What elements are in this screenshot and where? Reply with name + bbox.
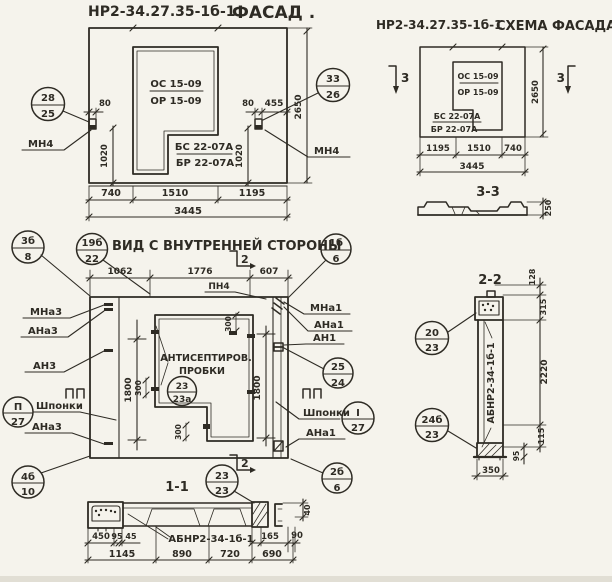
callout-num: 24б [422,414,443,426]
facade-opening-mark-top: ОС 15-09 [150,79,201,90]
callout-num: 28 [41,93,55,104]
leader-line [284,348,324,369]
facade-title-name: ФАСАД . [232,3,315,23]
scan-artifact [0,576,612,582]
label-mna1: МНа1 [310,303,342,314]
callout-num: 4б [21,471,35,483]
inner-view: ВИД С ВНУТРЕННЕЙ СТОРОНЫ 3б 8 19б 22 2 1… [3,231,374,503]
callout-num: 20 [425,328,439,339]
callout-den: 27 [11,417,25,428]
section-marker-label: 2 [241,457,249,470]
dim-740: 740 [504,144,522,154]
dim-1020-left: 1020 [100,144,110,168]
dim-2220: 2220 [540,359,550,384]
scheme-opening-mark-bottom: ОР 15-09 [457,88,498,97]
callout-24b-23: 24б 23 [416,409,477,449]
callout-den: 25 [41,109,55,120]
leader-line [25,433,104,444]
dim-315: 315 [539,298,548,315]
rebar-dots [482,303,494,311]
dim-300-b: 300 [134,380,143,396]
label-an1: АН1 [313,333,336,344]
dim-165: 165 [261,532,279,542]
drawing-canvas: НР2-34.27.35-1б-1 ФАСАД . ОС 15-09 ОР 15… [0,0,612,582]
label-ana3-bottom: АНа3 [32,422,62,433]
scheme-title-name: СХЕМА ФАСАДА [496,19,612,34]
dim-1195: 1195 [426,144,450,154]
callout-num: 33 [326,74,340,85]
section-marker-3-left: 3 [389,66,409,94]
inner-view-title: ВИД С ВНУТРЕННЕЙ СТОРОНЫ [112,238,341,254]
callout-den: 22 [85,254,99,265]
dim-95: 95 [111,532,123,541]
callout-den: 27 [351,423,365,434]
dim-1195: 1195 [239,188,265,199]
callout-den: 23 [425,343,439,354]
callout-4b-10: 4б 10 [12,456,90,498]
hatch-lines [253,503,267,526]
scheme-block-mark-bottom: БР 22-07А [431,125,478,134]
section-2-2-mark: АБНР2-34-1б-1 [486,342,497,423]
left-edge-anchor-marks [104,303,113,445]
right-edge-anchor-marks [272,298,284,451]
section-1-1-title: 1-1 [165,480,189,495]
leader-line [205,292,266,299]
dim-80-right: 80 [242,99,254,109]
dim-1062: 1062 [107,267,132,277]
bottom-end-block [477,443,503,457]
section-3-3-title: 3-3 [476,185,500,200]
dim-1800-left: 1800 [124,377,134,402]
dim-1776: 1776 [187,267,212,277]
drawing-sheet: НР2-34.27.35-1б-1 ФАСАД . ОС 15-09 ОР 15… [0,0,612,582]
callout-20-23: 20 23 [416,313,477,355]
callout-num: 19б [82,237,103,249]
dim-1510: 1510 [162,188,189,199]
label-shponki-left: Шпонки [36,401,83,412]
dim-690: 690 [262,549,282,560]
dim-450: 450 [92,532,110,542]
leader-line [448,431,476,448]
callout-num: 1б [329,237,343,249]
web-rib-profile [146,509,246,526]
dim-455: 455 [265,99,284,109]
left-block-channel [92,506,120,521]
callout-den: 6 [333,254,340,265]
pn4-label: ПН4 [208,282,229,292]
scheme-block-mark-top: БС 22-07А [434,112,481,121]
dim-2650: 2650 [531,80,541,104]
callout-23-23a: 23 23а [168,377,197,406]
callout-den: 23 [215,486,229,497]
facade-block-mark-top: БС 22-07А [175,142,233,153]
antiseptic-plugs [151,330,255,429]
section-3-3: 3-3 250 [418,185,553,219]
dim-128: 128 [528,268,537,285]
label-an3: АН3 [33,361,56,372]
callout-num: 2б [330,466,344,478]
callout-num: 23 [176,382,189,392]
facade-anchor-label-right: МН4 [314,146,339,157]
right-channel-ticks [278,509,282,521]
dim-115: 115 [537,427,546,444]
dowel-symbol-right [303,389,321,398]
scheme-view: НР2-34.27.35-1б-1 СХЕМА ФАСАДА ОС 15-09 … [376,18,612,176]
label-ana1-top: АНа1 [314,320,344,331]
section-3-3-profile [418,202,527,215]
dim-300-c: 300 [174,424,183,440]
facade-view: НР2-34.27.35-1б-1 ФАСАД . ОС 15-09 ОР 15… [22,3,350,221]
section-2-2-title: 2-2 [478,273,502,288]
leader-line [63,111,89,122]
callout-num: 3б [21,235,35,247]
leader-line [286,439,345,447]
dim-45: 45 [125,532,137,541]
right-channel [275,504,282,526]
label-mna3: МНа3 [30,307,62,318]
anchor-plate-left-fill [89,125,96,129]
section-1-1-mark: АБНР2-34-1б-1 [168,533,253,545]
anchor-plate-right-fill [255,125,262,129]
callout-2b-6: 2б 6 [291,459,352,494]
plugs-label-line2: ПРОБКИ [179,366,225,377]
leader-line [33,412,116,420]
leader-line [291,459,323,473]
dim-1510: 1510 [467,144,491,154]
scheme-opening-mark-top: ОС 15-09 [457,72,498,81]
callout-den: 23а [173,395,192,405]
callout-den: 6 [334,483,341,494]
dim-40: 40 [303,504,312,516]
callout-den: 10 [21,487,35,498]
callout-facade-left: 28 25 [32,88,90,123]
scheme-title-code: НР2-34.27.35-1б-1 [376,18,502,32]
dim-1145: 1145 [109,549,135,560]
section-marker-label: 3 [557,71,565,85]
leader-line [41,456,90,473]
leader-line [284,344,344,345]
dim-300-a: 300 [224,316,233,332]
facade-opening-mark-bottom: ОР 15-09 [150,96,201,107]
dim-1020-right: 1020 [235,144,245,168]
dim-740: 740 [101,188,121,199]
dim-80-left: 80 [99,99,111,109]
callout-den: 24 [331,378,345,389]
plugs-label-line1: АНТИСЕПТИРОВ. [160,353,251,364]
rebar-dots [95,509,116,516]
callout-25-24: 25 24 [284,348,353,389]
label-ana1-bottom: АНа1 [306,428,336,439]
section-marker-3-right: 3 [557,66,575,94]
section-marker-label: 2 [241,253,249,266]
section-1-1: 1-1 АБНР2-34-1б-1 450 95 45 [85,480,312,563]
leader-line [234,491,254,503]
callout-num: 23 [215,471,229,482]
dim-95: 95 [512,451,521,461]
dim-350: 350 [482,466,500,476]
top-block-channel [479,301,499,315]
dim-720: 720 [220,549,240,560]
callout-num: 25 [331,362,345,373]
callout-den: 8 [25,252,32,263]
section-2-2: 2-2 АБНР2-34-1б-1 128 315 2220 115 95 35… [416,268,551,480]
dim-3445: 3445 [459,162,484,172]
callout-num: I [356,408,360,419]
leader-line [448,313,476,332]
dim-1800-right: 1800 [253,375,263,400]
facade-opening-outline [133,47,218,174]
inner-opening-inner-line [159,319,249,437]
callout-num: П [14,402,22,413]
dim-250: 250 [544,199,553,216]
leader-line [103,260,150,294]
facade-anchor-label-left: МН4 [28,139,53,150]
facade-block-mark-bottom: БР 22-07А [176,158,234,169]
callout-den: 23 [425,430,439,441]
facade-title-code: НР2-34.27.35-1б-1 [88,4,236,20]
inner-opening-outline [155,315,253,441]
dim-2650: 2650 [294,94,304,119]
leader-line [289,260,326,297]
hatch-lines [478,444,503,457]
dim-890: 890 [172,549,192,560]
callout-den: 26 [326,90,340,101]
section-marker-label: 3 [401,71,409,85]
dim-607: 607 [260,267,279,277]
dim-3445: 3445 [174,206,202,217]
dowel-symbol-left [66,389,84,398]
label-ana3-top: АНа3 [28,326,58,337]
callout-p-27: П 27 [3,397,33,428]
